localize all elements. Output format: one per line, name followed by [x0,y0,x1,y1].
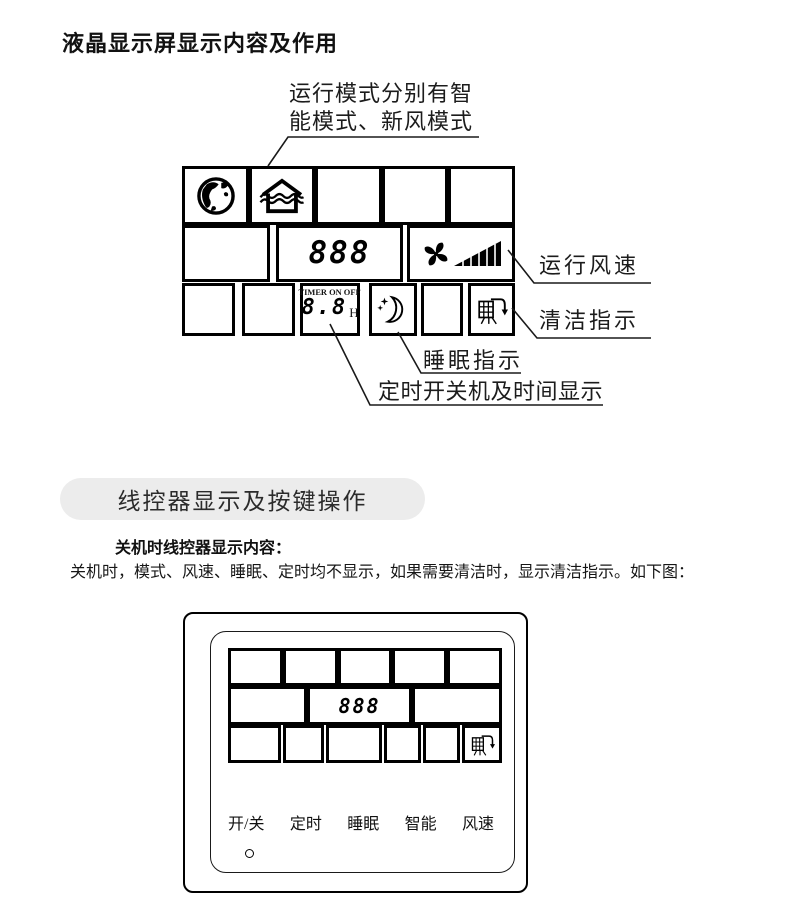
lcd-cell [382,166,448,225]
lcd-cell [228,648,283,686]
lcd-row-1 [228,648,502,686]
lcd-cell [228,686,307,725]
lcd-cell [447,648,502,686]
button-smart: 智能 [405,810,437,834]
page-title: 液晶显示屏显示内容及作用 [62,26,338,58]
lcd-cell [448,166,515,225]
lcd-display-diagram: 888 [182,166,515,336]
button-sleep: 睡眠 [347,810,379,834]
sleep-indicator-label: 睡眠指示 [423,349,523,373]
lcd-cell [423,725,460,763]
lcd-cell [392,648,447,686]
off-state-description: 关机时，模式、风速、睡眠、定时均不显示，如果需要清洁时，显示清洁指示。如下图： [70,558,694,582]
lcd-cell [228,725,281,763]
lcd-digits: 888 [338,696,380,716]
lcd-cell [384,725,421,763]
lcd-temp-cell: 888 [307,686,412,725]
lcd-temp-cell: 888 [276,225,403,282]
lcd-cell [283,648,338,686]
section-header-text: 线控器显示及按键操作 [118,482,368,516]
lcd-cell [326,725,382,763]
timer-digits: 8.8 [301,297,347,319]
fan-speed-label: 运行风速 [539,254,639,278]
lcd-cell [412,686,502,725]
lcd-cell [315,166,382,225]
lcd-timer-cell: TIMER ON OFF 8.8 H [300,283,360,336]
lcd-cell [182,166,249,225]
sleep-moon-icon [377,294,409,326]
off-state-subheading: 关机时线控器显示内容： [115,534,291,558]
lcd-row-2: 888 [182,225,515,282]
controller-lcd-diagram: 888 [228,648,502,763]
timer-hour-unit: H [349,306,358,319]
timer-on-off-label: TIMER ON OFF [299,288,361,297]
clean-filter-icon [476,294,508,326]
lcd-digits: 888 [309,238,371,269]
manual-page: 液晶显示屏显示内容及作用 运行模式分别有智 能模式、新风模式 [0,0,790,912]
lcd-sleep-cell [369,283,417,336]
timer-display-label: 定时开关机及时间显示 [378,380,603,404]
clean-indicator-label: 清洁指示 [539,309,639,333]
power-indicator-dot [245,849,254,858]
fresh-air-mode-icon [259,177,305,215]
fan-icon [421,239,451,269]
lcd-cell [182,225,270,282]
lcd-row-2: 888 [228,686,502,725]
button-power: 开/关 [228,810,264,834]
clean-filter-icon [470,732,495,757]
lcd-row-3 [228,725,502,763]
controller-buttons: 开/关 定时 睡眠 智能 风速 [228,810,494,834]
fan-speed-bars-icon [454,240,502,267]
button-timer: 定时 [290,810,322,834]
globe-icon [195,175,237,217]
lcd-fanspeed-cell [407,225,515,282]
lcd-cell [242,283,295,336]
section-header-pill: 线控器显示及按键操作 [60,478,425,520]
button-fanspeed: 风速 [462,810,494,834]
lcd-cell [338,648,393,686]
lcd-cell [283,725,324,763]
lcd-clean-cell [462,725,502,763]
lcd-cell [421,283,463,336]
lcd-clean-cell [468,283,515,336]
lcd-cell [182,283,235,336]
mode-annotation: 运行模式分别有智 能模式、新风模式 [289,80,473,136]
lcd-row-3: TIMER ON OFF 8.8 H [182,283,515,336]
lcd-row-1 [182,166,515,225]
lcd-cell [249,166,315,225]
